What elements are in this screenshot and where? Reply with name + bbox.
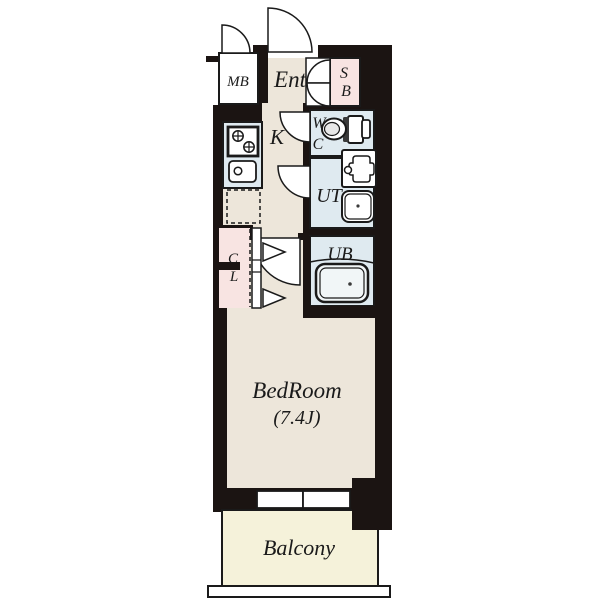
closet-door-panel	[252, 228, 261, 308]
wall-below-bath	[303, 306, 392, 318]
entrance-label: Ent	[273, 67, 307, 92]
shoe-box-label-s: S	[340, 65, 348, 82]
bathtub-icon	[316, 264, 368, 302]
floor-plan-canvas: MB Ent S B W C K UT C L UB BedRoom (7.4J…	[0, 0, 600, 600]
washer-outline-icon	[349, 156, 374, 182]
bedroom-size-label: (7.4J)	[273, 407, 321, 429]
corner-pillar	[352, 478, 392, 530]
window-pane-left	[257, 491, 303, 508]
balcony-label: Balcony	[263, 535, 335, 560]
closet-label-c: C	[228, 251, 239, 267]
refrigerator-space	[227, 190, 260, 223]
wc-label-w: W	[312, 115, 327, 132]
toilet-icon	[322, 116, 370, 143]
bedroom-label: BedRoom	[252, 378, 341, 403]
window-pane-right	[303, 491, 350, 508]
utility-label: UT	[316, 185, 343, 207]
stove-icon	[228, 127, 258, 156]
utility-sink-drain	[356, 204, 359, 207]
mb-label: MB	[226, 74, 249, 90]
wc-label-c: C	[313, 136, 324, 153]
wall-left-of-bath	[303, 236, 310, 308]
kitchen-label: K	[269, 125, 285, 149]
floor-plan: MB Ent S B W C K UT C L UB BedRoom (7.4J…	[0, 0, 600, 600]
kitchen-faucet-icon	[234, 167, 242, 175]
shoe-box-label-b: B	[341, 83, 351, 100]
unit-bath-label: UB	[327, 244, 353, 265]
bathtub-drain	[348, 282, 352, 286]
closet-label-l: L	[229, 269, 238, 285]
balcony-rail	[208, 586, 390, 597]
washer-drain-icon	[345, 167, 352, 174]
outer-wall-stub	[206, 56, 220, 62]
